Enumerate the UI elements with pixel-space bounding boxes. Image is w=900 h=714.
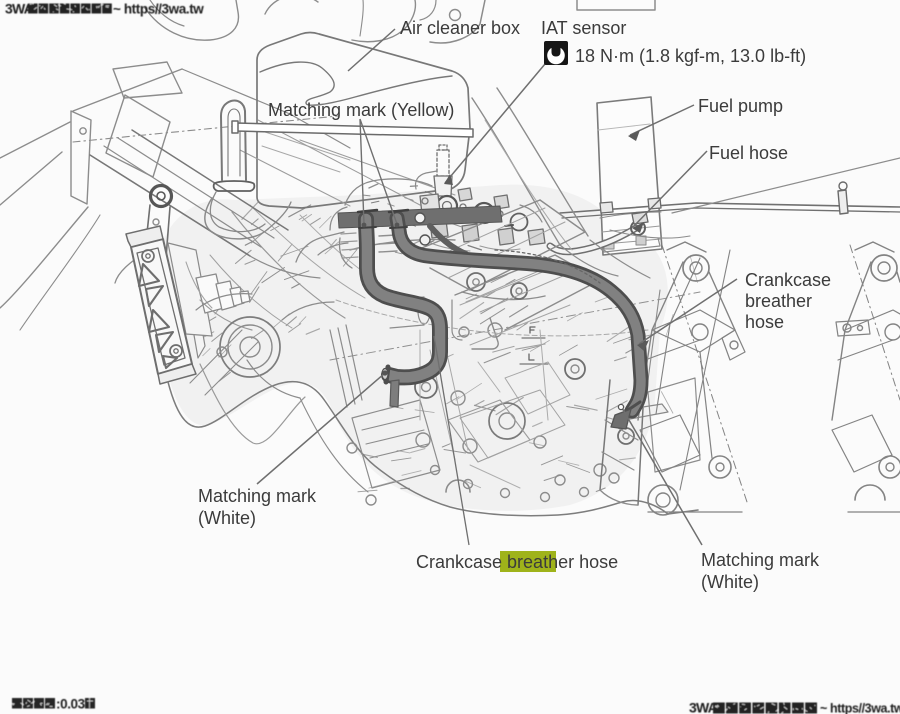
svg-text::0.03: :0.03 [56, 697, 86, 712]
svg-text:~ https//3wa.tw: ~ https//3wa.tw [820, 702, 900, 714]
svg-text:hose: hose [745, 312, 784, 332]
svg-text:Crankcase breather hose: Crankcase breather hose [416, 552, 618, 572]
svg-text:~ https//3wa.tw: ~ https//3wa.tw [113, 2, 204, 17]
svg-text:breather: breather [745, 291, 812, 311]
svg-text:Crankcase: Crankcase [745, 270, 831, 290]
svg-text:Matching mark (Yellow): Matching mark (Yellow) [268, 100, 454, 120]
svg-text:IAT sensor: IAT sensor [541, 18, 626, 38]
svg-text:18 N·m (1.8 kgf-m, 13.0 lb-ft): 18 N·m (1.8 kgf-m, 13.0 lb-ft) [575, 46, 806, 66]
svg-text:(White): (White) [701, 572, 759, 592]
svg-text:Matching mark: Matching mark [198, 486, 317, 506]
svg-text:Fuel pump: Fuel pump [698, 96, 783, 116]
svg-text:Fuel hose: Fuel hose [709, 143, 788, 163]
svg-text:Air cleaner box: Air cleaner box [400, 18, 520, 38]
svg-text:Matching mark: Matching mark [701, 550, 820, 570]
svg-text:(White): (White) [198, 508, 256, 528]
